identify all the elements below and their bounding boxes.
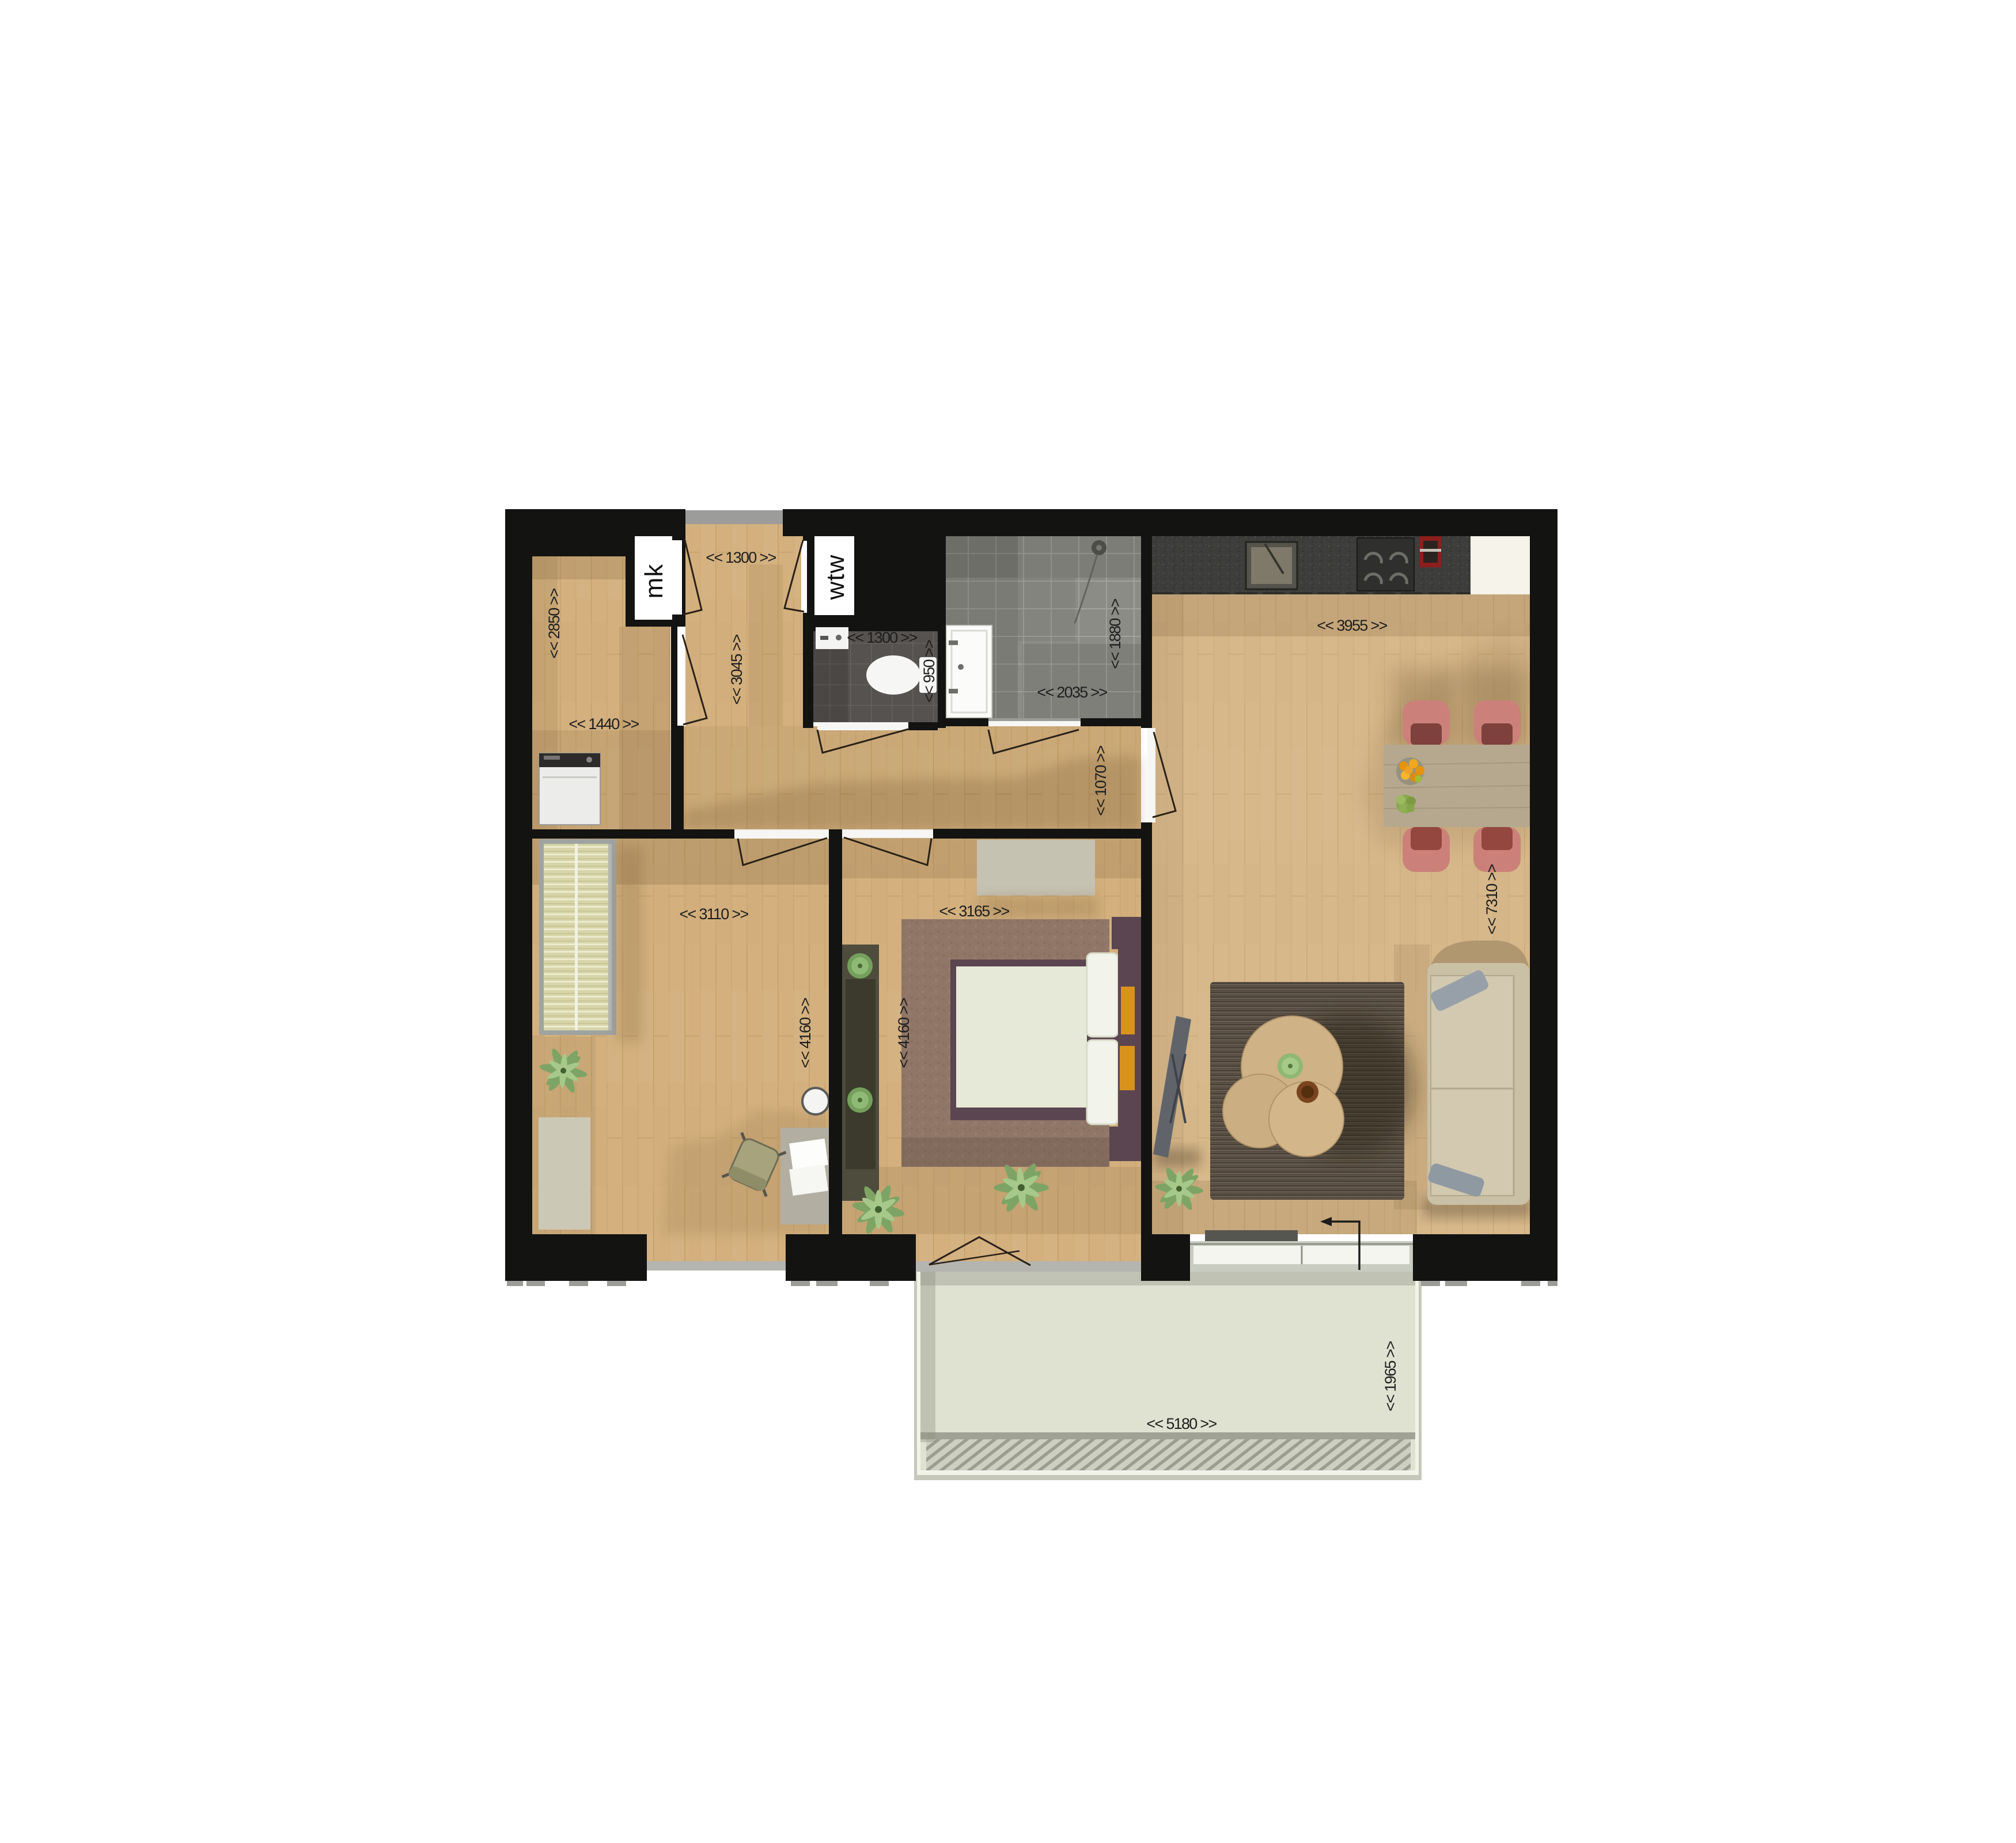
svg-text:<< 5180 >>: << 5180 >> [1146, 1415, 1217, 1432]
svg-text:<< 3110 >>: << 3110 >> [679, 905, 748, 923]
svg-text:<< 1300 >>: << 1300 >> [847, 629, 917, 646]
svg-text:<< 1070 >>: << 1070 >> [1092, 746, 1109, 816]
svg-text:<< 1965 >>: << 1965 >> [1382, 1341, 1399, 1412]
svg-text:<< 950 >>: << 950 >> [920, 640, 938, 703]
svg-text:<< 3165 >>: << 3165 >> [939, 902, 1009, 920]
svg-text:<< 1440 >>: << 1440 >> [569, 715, 639, 733]
svg-text:<< 2035 >>: << 2035 >> [1037, 684, 1107, 701]
svg-text:wtw: wtw [821, 555, 850, 601]
svg-text:<< 4160 >>: << 4160 >> [895, 998, 912, 1068]
svg-text:<< 4160 >>: << 4160 >> [797, 998, 814, 1068]
svg-text:<< 2850 >>: << 2850 >> [545, 589, 563, 659]
svg-text:<< 3955 >>: << 3955 >> [1317, 617, 1387, 634]
svg-text:<< 7310 >>: << 7310 >> [1483, 864, 1500, 935]
svg-text:mk: mk [640, 564, 668, 599]
svg-text:<< 3045 >>: << 3045 >> [728, 635, 745, 705]
svg-text:<< 1300 >>: << 1300 >> [706, 549, 776, 566]
svg-text:<< 1880 >>: << 1880 >> [1106, 599, 1124, 669]
